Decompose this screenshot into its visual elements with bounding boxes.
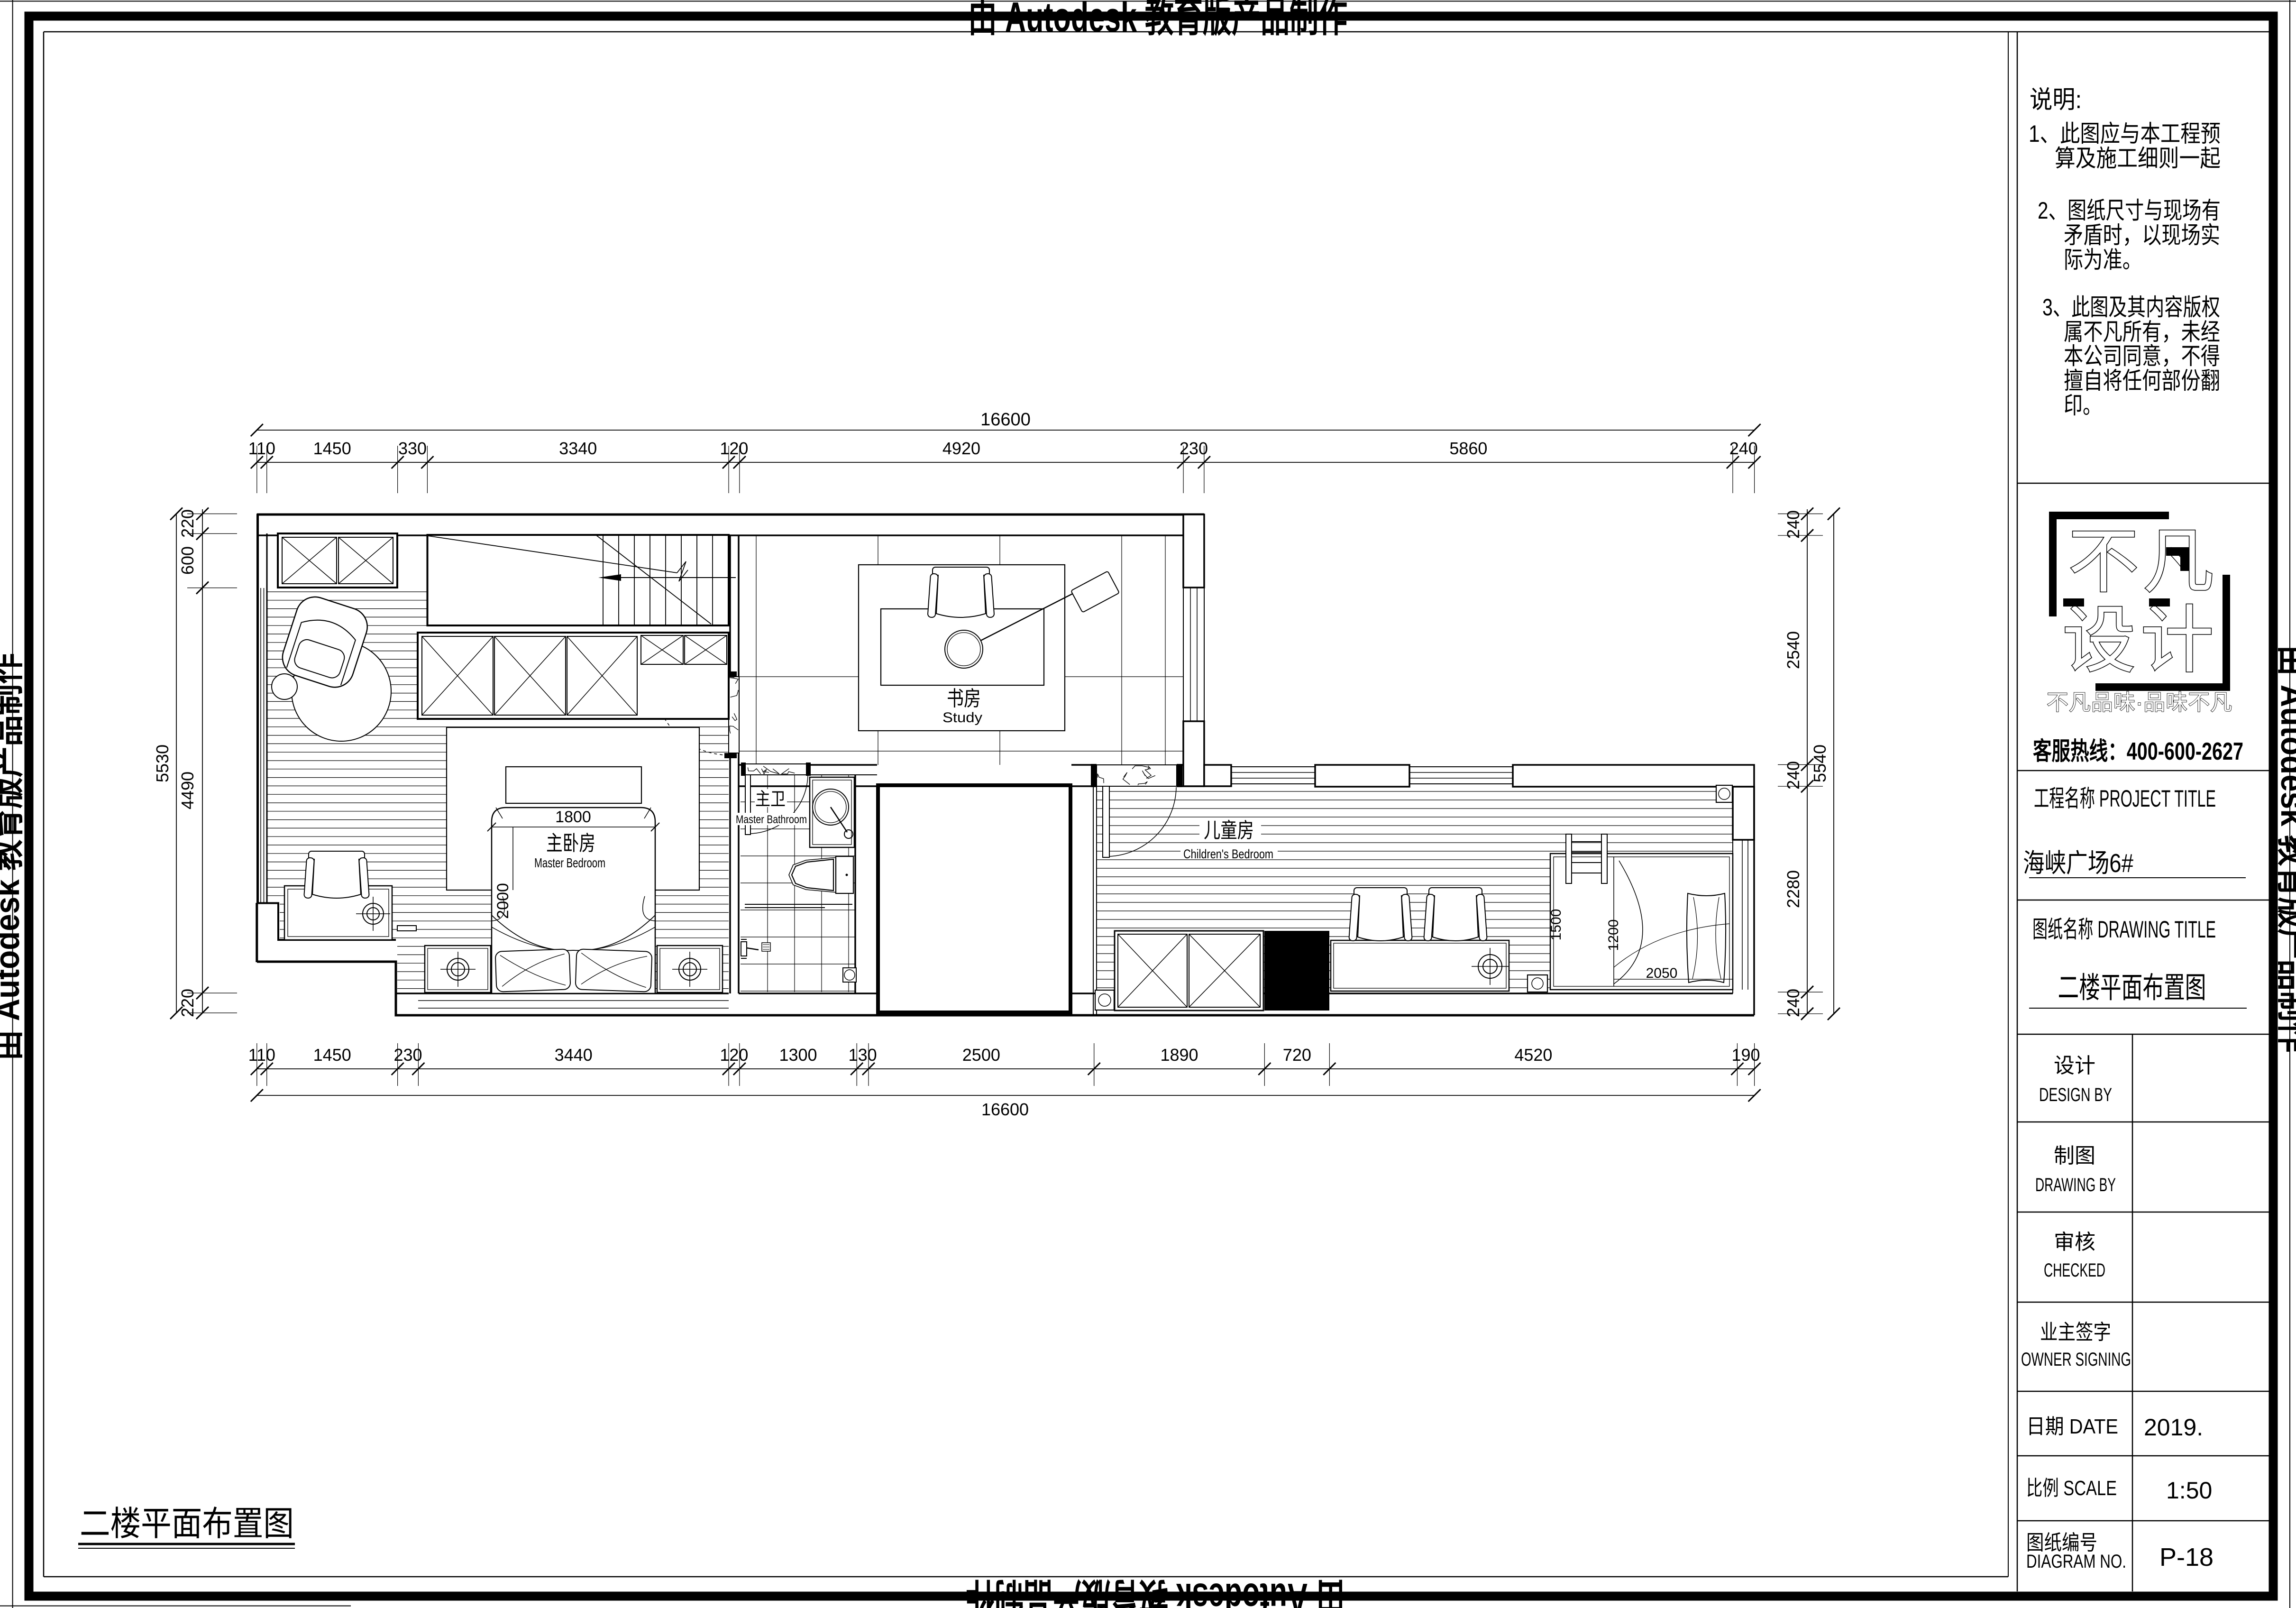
svg-text:Master Bathroom: Master Bathroom: [736, 813, 807, 826]
svg-text:Study: Study: [942, 710, 982, 726]
svg-text:DIAGRAM NO.: DIAGRAM NO.: [2026, 1551, 2126, 1572]
svg-text:矛盾时，以现场实: 矛盾时，以现场实: [2064, 222, 2220, 248]
svg-text:不凡: 不凡: [2068, 522, 2218, 601]
svg-text:120: 120: [720, 439, 748, 458]
svg-text:制图: 制图: [2054, 1144, 2095, 1167]
svg-text:1450: 1450: [313, 439, 351, 458]
svg-text:CHECKED: CHECKED: [2044, 1260, 2105, 1281]
svg-text:230: 230: [1180, 439, 1208, 458]
svg-text:230: 230: [393, 1045, 422, 1065]
svg-text:主卧房: 主卧房: [546, 832, 595, 855]
svg-text:3340: 3340: [559, 439, 597, 458]
svg-text:4920: 4920: [942, 439, 980, 458]
svg-text:2540: 2540: [1784, 631, 1803, 669]
svg-text:设计: 设计: [2054, 1054, 2095, 1077]
svg-text:220: 220: [178, 989, 197, 1017]
svg-text:书房: 书房: [947, 687, 981, 710]
svg-text:2500: 2500: [962, 1045, 1000, 1065]
svg-text:比例 SCALE: 比例 SCALE: [2026, 1477, 2117, 1500]
svg-text:2280: 2280: [1784, 870, 1803, 908]
svg-text:算及施工细则一起: 算及施工细则一起: [2055, 145, 2221, 172]
svg-text:1450: 1450: [313, 1045, 351, 1065]
svg-text:16600: 16600: [981, 1100, 1029, 1119]
svg-text:儿童房: 儿童房: [1204, 819, 1254, 842]
svg-text:由 Autodesk 教育版产品制作: 由 Autodesk 教育版产品制作: [0, 653, 27, 1061]
svg-text:图纸名称 DRAWING TITLE: 图纸名称 DRAWING TITLE: [2032, 916, 2216, 943]
svg-text:5530: 5530: [153, 744, 172, 782]
svg-text:设计: 设计: [2062, 599, 2219, 681]
svg-text:110: 110: [248, 1045, 275, 1065]
svg-text:220: 220: [178, 509, 197, 538]
svg-text:1300: 1300: [779, 1045, 817, 1065]
svg-text:4520: 4520: [1514, 1045, 1552, 1065]
svg-text:说明:: 说明:: [2030, 86, 2082, 114]
svg-text:P-18: P-18: [2159, 1543, 2214, 1571]
svg-text:擅自将任何部份翻: 擅自将任何部份翻: [2064, 368, 2220, 394]
svg-text:OWNER SIGNING: OWNER SIGNING: [2021, 1349, 2131, 1370]
svg-text:190: 190: [1732, 1045, 1760, 1065]
svg-text:二楼平面布置图: 二楼平面布置图: [80, 1505, 294, 1543]
svg-text:2050: 2050: [1646, 965, 1678, 981]
svg-text:际为准。: 际为准。: [2064, 247, 2142, 273]
svg-text:240: 240: [1784, 761, 1803, 790]
svg-text:1890: 1890: [1160, 1045, 1198, 1065]
svg-text:不凡品味·品味不凡: 不凡品味·品味不凡: [2047, 690, 2232, 715]
svg-text:1500: 1500: [1548, 909, 1564, 941]
svg-text:130: 130: [849, 1045, 877, 1065]
svg-text:由 Autodesk 教育版产品制作: 由 Autodesk 教育版产品制作: [2274, 645, 2296, 1053]
svg-text:2、图纸尺寸与现场有: 2、图纸尺寸与现场有: [2038, 197, 2221, 224]
svg-text:5860: 5860: [1449, 439, 1487, 458]
svg-text:业主签字: 业主签字: [2040, 1321, 2111, 1344]
svg-text:海峡广场6#: 海峡广场6#: [2023, 848, 2133, 878]
svg-text:主卫: 主卫: [755, 790, 786, 809]
svg-text:110: 110: [248, 439, 275, 458]
svg-text:DESIGN BY: DESIGN BY: [2039, 1084, 2112, 1105]
svg-text:240: 240: [1784, 989, 1803, 1017]
svg-text:本公司同意，不得: 本公司同意，不得: [2064, 343, 2220, 369]
svg-text:3、此图及其内容版权: 3、此图及其内容版权: [2042, 294, 2220, 321]
svg-text:5540: 5540: [1810, 744, 1829, 782]
svg-text:DRAWING BY: DRAWING BY: [2035, 1175, 2116, 1195]
svg-text:由 Autodesk 教育版产品制作: 由 Autodesk 教育版产品制作: [966, 1575, 1345, 1608]
svg-text:日期 DATE: 日期 DATE: [2026, 1415, 2118, 1438]
svg-text:工程名称 PROJECT TITLE: 工程名称 PROJECT TITLE: [2034, 785, 2216, 812]
svg-text:1:50: 1:50: [2166, 1477, 2212, 1504]
svg-text:240: 240: [1784, 510, 1803, 539]
svg-text:1、此图应与本工程预: 1、此图应与本工程预: [2029, 120, 2221, 147]
svg-text:由 Autodesk 教育版产品制作: 由 Autodesk 教育版产品制作: [968, 0, 1347, 40]
svg-text:330: 330: [398, 439, 427, 458]
svg-text:240: 240: [1729, 439, 1758, 458]
svg-text:二楼平面布置图: 二楼平面布置图: [2058, 972, 2206, 1004]
svg-text:2000: 2000: [494, 883, 512, 919]
svg-text:600: 600: [178, 546, 197, 575]
svg-text:4490: 4490: [178, 772, 197, 809]
svg-text:属不凡所有，未经: 属不凡所有，未经: [2064, 319, 2220, 345]
svg-text:720: 720: [1283, 1045, 1311, 1065]
svg-text:客服热线：400-600-2627: 客服热线：400-600-2627: [2033, 738, 2243, 765]
svg-text:2019.: 2019.: [2144, 1414, 2203, 1441]
svg-text:1200: 1200: [1606, 919, 1621, 951]
svg-text:16600: 16600: [980, 410, 1031, 430]
svg-text:审核: 审核: [2054, 1231, 2095, 1254]
svg-text:Master Bedroom: Master Bedroom: [534, 855, 605, 870]
svg-text:3440: 3440: [555, 1045, 593, 1065]
svg-text:Children's Bedroom: Children's Bedroom: [1183, 847, 1273, 861]
svg-text:1800: 1800: [555, 808, 591, 826]
svg-text:120: 120: [720, 1045, 748, 1065]
svg-text:印。: 印。: [2064, 392, 2102, 419]
